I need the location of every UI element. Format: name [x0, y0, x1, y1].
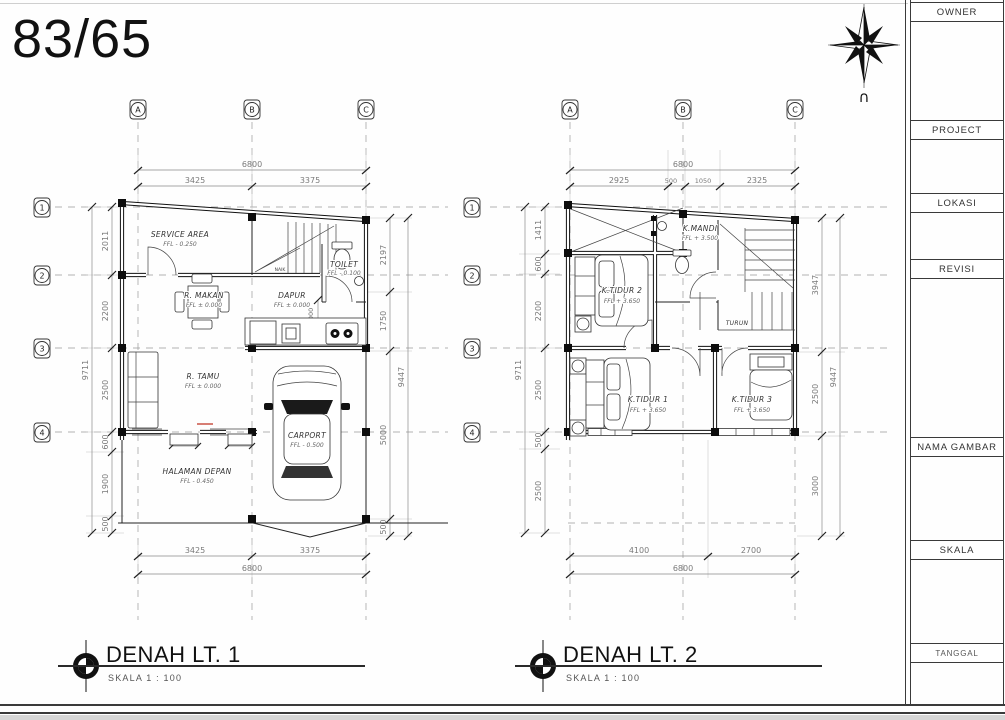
grid-row-label: 4	[469, 429, 474, 438]
dim-label: 3425	[185, 176, 205, 185]
grid-row-label: 1	[469, 204, 474, 213]
room-label: CARPORT	[288, 431, 327, 440]
dim-label: 2925	[609, 176, 629, 185]
dim-label: 600	[101, 434, 110, 449]
staircase: NAIK	[255, 222, 336, 273]
dim-label: 2200	[101, 301, 110, 321]
dim-label: 6800	[673, 160, 693, 169]
drawing-sheet: 83/65 ∩ A B C 1	[0, 0, 1005, 720]
room-ffl: FFL ± 0.000	[274, 302, 310, 309]
room-ffl: FFL ± 0.000	[185, 383, 221, 390]
grid-row-label: 1	[39, 204, 44, 213]
titleblock-border-line	[1003, 0, 1004, 706]
room-label: DAPUR	[278, 291, 306, 300]
grid-row-label: 2	[39, 272, 44, 281]
dim-label: 9447	[397, 367, 406, 387]
dim-label: 9711	[514, 360, 523, 380]
grid-col-label: B	[249, 106, 255, 115]
dim-label: 2197	[379, 245, 388, 265]
compass-rose-icon: ∩	[822, 2, 908, 106]
floor-plan-2: A B C 1 2 3 4 6800 2925 500 1050 2325 14…	[460, 95, 905, 635]
titleblock-label: TANGGAL	[935, 649, 978, 658]
sheet-top-edge	[0, 3, 908, 4]
dim-label: 3375	[300, 176, 320, 185]
room-ffl: FFL - 0.100	[327, 270, 361, 277]
dim-label: 2325	[747, 176, 767, 185]
sink-icon	[658, 222, 667, 231]
room-label: R. MAKAN	[184, 291, 224, 300]
room-label: K.MANDI	[683, 224, 718, 233]
room-label: K.TIDUR 3	[732, 395, 772, 404]
floor-plan-1: A B C 1 2 3 4 6800 3425 3375 2011 2200 2…	[0, 95, 460, 635]
plan1-title: DENAH LT. 1	[106, 642, 241, 668]
grid-lines	[55, 122, 448, 620]
stair-label: NAIK	[275, 267, 287, 273]
room-label: R. TAMU	[186, 372, 219, 381]
stove-icon	[326, 323, 358, 344]
sheet-number: 83/65	[12, 8, 152, 70]
room-label: K.TIDUR 2	[602, 286, 642, 295]
dim-label: 3425	[185, 546, 205, 555]
sheet-bottom-frame	[0, 704, 1005, 706]
dim-label: 600	[534, 256, 543, 271]
dim-label: 2500	[534, 481, 543, 501]
grid-col-label: B	[680, 106, 686, 115]
dim-label: 3947	[811, 275, 820, 295]
grid-row-label: 3	[39, 345, 44, 354]
dim-label: 6800	[673, 564, 693, 573]
dim-label: 500	[379, 519, 388, 534]
room-ffl: FFL + 3.650	[630, 407, 666, 414]
sheet-bottom-frame	[0, 712, 1005, 714]
titleblock-nama-gambar: NAMA GAMBAR	[911, 437, 1003, 457]
room-label: SERVICE AREA	[151, 230, 209, 239]
titleblock-label: OWNER	[937, 7, 977, 18]
titleblock-label: NAMA GAMBAR	[917, 442, 997, 453]
dim-label: 1050	[695, 177, 712, 185]
dim-label: 2700	[741, 546, 761, 555]
sofa-icon	[128, 352, 158, 428]
plan1-scale: SKALA 1 : 100	[108, 673, 182, 683]
dim-label: 3000	[811, 476, 820, 496]
plan2-scale: SKALA 1 : 100	[566, 673, 640, 683]
dim-label: 6800	[242, 160, 262, 169]
titleblock-lokasi: LOKASI	[911, 193, 1003, 213]
grid-col-label: C	[363, 106, 369, 115]
kitchen-counter	[245, 318, 366, 345]
dim-label: 3375	[300, 546, 320, 555]
titleblock-label: SKALA	[940, 545, 975, 556]
dim-label: 9447	[829, 367, 838, 387]
sheet-bottom-edge	[0, 715, 1005, 720]
plan2-title: DENAH LT. 2	[563, 642, 698, 668]
room-ffl: FFL - 0.500	[290, 442, 324, 449]
grid-col-label: A	[567, 106, 573, 115]
room-label: HALAMAN DEPAN	[163, 467, 232, 476]
titleblock-skala: SKALA	[911, 540, 1003, 560]
dim-label: 2011	[101, 231, 110, 251]
titleblock-border-line	[910, 0, 911, 706]
dim-label: 5000	[379, 425, 388, 445]
room-label: TURUN	[726, 320, 749, 327]
dim-label: 1411	[534, 220, 543, 240]
grid-col-label: C	[792, 106, 798, 115]
dim-label: 9711	[81, 360, 90, 380]
titleblock-owner: OWNER	[911, 2, 1003, 22]
grid-row-label: 4	[39, 429, 44, 438]
grid-row-label: 2	[469, 272, 474, 281]
toilet-icon	[673, 250, 691, 274]
titleblock-project: PROJECT	[911, 120, 1003, 140]
room-label: TOILET	[330, 260, 359, 269]
dim-label: 4100	[629, 546, 649, 555]
titleblock-label: LOKASI	[937, 198, 976, 209]
dim-label: 500	[534, 432, 543, 447]
entry-steps	[170, 424, 252, 445]
dim-label: 2500	[534, 380, 543, 400]
room-ffl: FFL + 3.650	[734, 407, 770, 414]
dim-label: 2200	[534, 301, 543, 321]
grid-col-label: A	[135, 106, 141, 115]
room-ffl: FFL - 0.250	[163, 241, 197, 248]
dim-label: 2500	[101, 380, 110, 400]
titleblock-revisi: REVISI	[911, 259, 1003, 279]
dim-label: 2500	[811, 384, 820, 404]
dim-label: 1900	[101, 474, 110, 494]
titleblock-tanggal: TANGGAL	[911, 643, 1003, 663]
titleblock-label: PROJECT	[932, 125, 982, 136]
room-ffl: FFL + 3.500	[682, 235, 718, 242]
dim-label: 6800	[242, 564, 262, 573]
grid-row-label: 3	[469, 345, 474, 354]
titleblock-border-line	[905, 0, 906, 706]
dim-label: 500	[101, 516, 110, 531]
dim-label: 1750	[379, 311, 388, 331]
room-label: K.TIDUR 1	[628, 395, 668, 404]
room-ffl: FFL + 3.650	[604, 298, 640, 305]
sink-icon	[282, 324, 300, 343]
room-ffl: FFL - 0.450	[180, 478, 214, 485]
room-ffl: FFL ± 0.000	[186, 302, 222, 309]
titleblock-label: REVISI	[939, 264, 975, 275]
dim-label: 500	[665, 177, 677, 185]
